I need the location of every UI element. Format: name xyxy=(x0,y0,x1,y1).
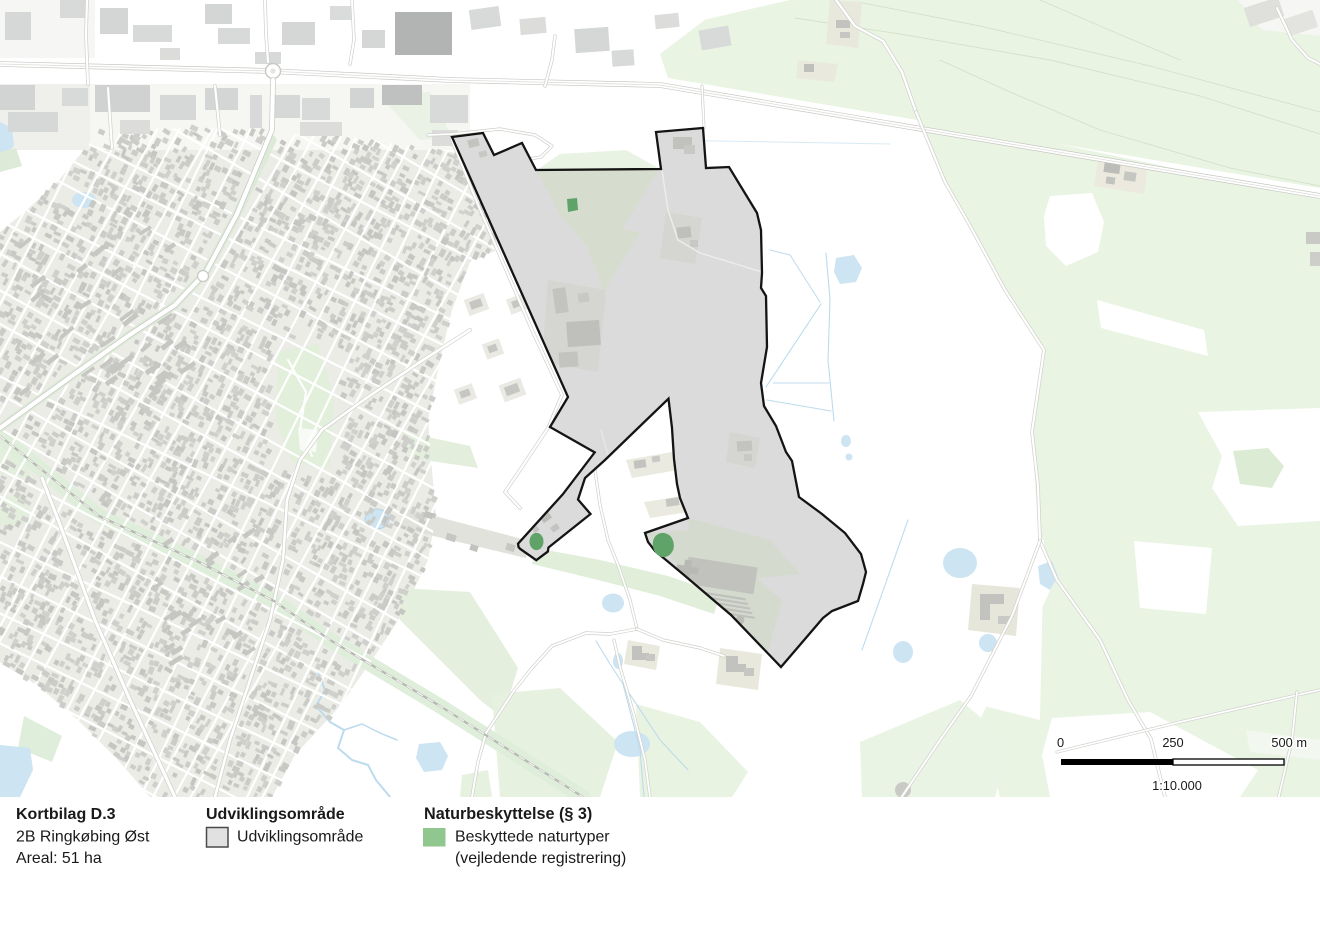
svg-text:250: 250 xyxy=(1162,735,1183,750)
svg-text:Beskyttede naturtyper: Beskyttede naturtyper xyxy=(455,829,610,846)
svg-text:(vejledende registrering): (vejledende registrering) xyxy=(455,850,626,867)
svg-text:Kortbilag D.3: Kortbilag D.3 xyxy=(16,806,116,823)
svg-text:Naturbeskyttelse (§ 3): Naturbeskyttelse (§ 3) xyxy=(424,805,592,823)
svg-text:1:10.000: 1:10.000 xyxy=(1152,778,1202,793)
svg-text:Areal: 51 ha: Areal: 51 ha xyxy=(16,850,102,867)
svg-text:Udviklingsområde: Udviklingsområde xyxy=(237,828,363,846)
svg-text:Udviklingsområde: Udviklingsområde xyxy=(206,805,345,823)
svg-text:500 m: 500 m xyxy=(1271,735,1307,750)
svg-text:2B Ringkøbing Øst: 2B Ringkøbing Øst xyxy=(16,829,150,846)
svg-text:0: 0 xyxy=(1057,735,1064,750)
